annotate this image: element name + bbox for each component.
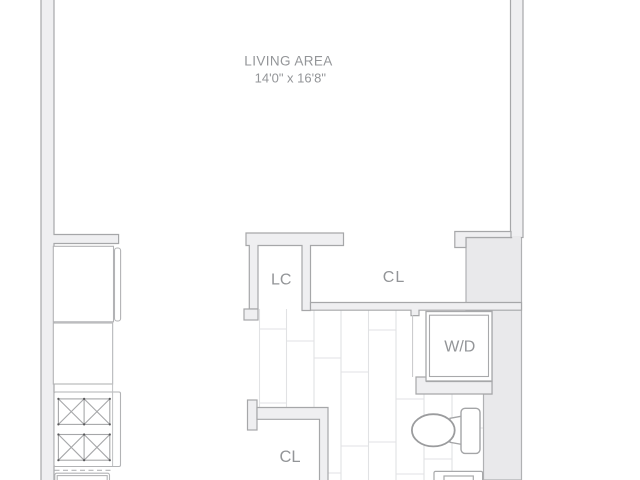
svg-text:14'0" x 16'8": 14'0" x 16'8" (255, 71, 327, 86)
svg-text:LIVING AREA: LIVING AREA (244, 54, 332, 69)
svg-text:CL: CL (383, 269, 405, 286)
svg-text:W/D: W/D (444, 338, 475, 355)
svg-text:CL: CL (279, 448, 300, 466)
svg-text:LC: LC (271, 272, 291, 289)
